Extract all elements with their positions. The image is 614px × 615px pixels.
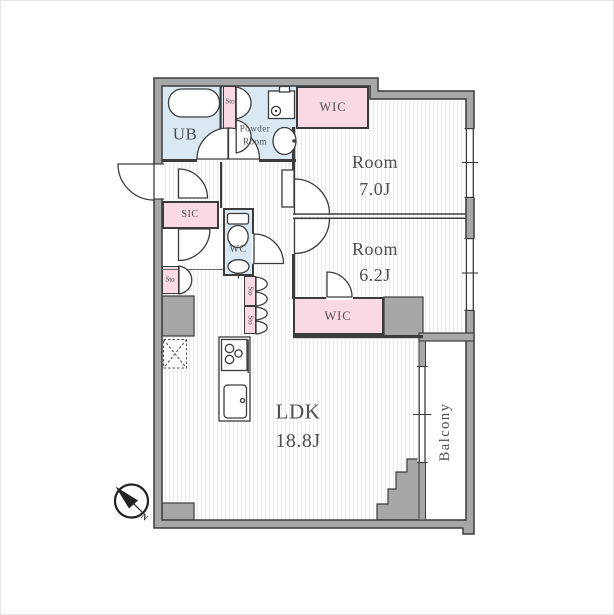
door-sto-hall-3 bbox=[256, 307, 267, 320]
door-ub bbox=[197, 128, 228, 159]
label-wc: WC bbox=[229, 245, 246, 255]
door-entrance bbox=[118, 164, 154, 200]
bathtub-icon bbox=[169, 89, 220, 117]
wc-sink-icon bbox=[228, 260, 249, 279]
door-sto-entry bbox=[179, 266, 192, 294]
label-wic-upper: WIC bbox=[319, 101, 346, 114]
door-wc bbox=[254, 234, 284, 264]
kitchen-counter bbox=[219, 337, 250, 421]
label-sto-hall-lower: Sto bbox=[247, 315, 254, 324]
label-powder-line2: Room bbox=[243, 138, 267, 147]
door-bedroom1 bbox=[295, 179, 330, 214]
label-wic-lower: WIC bbox=[324, 310, 351, 323]
label-sto-entry: Sto bbox=[165, 277, 174, 284]
label-sto-bath: Sto bbox=[225, 99, 234, 106]
window-ldk-balcony bbox=[413, 366, 431, 463]
plan-linework: N bbox=[1, 1, 614, 615]
door-sto-hall-1 bbox=[256, 277, 267, 291]
toilet-icon bbox=[228, 214, 249, 248]
duct-step-block bbox=[377, 459, 421, 520]
label-balcony: Balcony bbox=[438, 403, 453, 462]
floor-plan: N UB Sto Powder Room WIC Room 7.0J Room … bbox=[0, 0, 614, 615]
label-bedroom2-name: Room bbox=[352, 240, 398, 258]
refrigerator-space-icon bbox=[164, 340, 187, 369]
door-sto-hall-4 bbox=[256, 321, 267, 334]
label-ldk-name: LDK bbox=[276, 402, 321, 423]
window-bedroom1 bbox=[462, 128, 478, 198]
label-bedroom1-name: Room bbox=[352, 153, 398, 171]
kitchen-sink-icon bbox=[224, 385, 247, 418]
label-sto-hall-upper: Sto bbox=[247, 286, 254, 295]
door-sic bbox=[179, 229, 211, 261]
label-bedroom2-size: 6.2J bbox=[359, 266, 391, 284]
label-ub: UB bbox=[173, 126, 198, 143]
door-sto-hall-2 bbox=[256, 292, 267, 306]
label-ldk-size: 18.8J bbox=[275, 431, 320, 451]
powder-basin-icon bbox=[273, 128, 296, 155]
compass-icon: N bbox=[115, 485, 151, 524]
stove-icon bbox=[222, 340, 248, 371]
hall-cabinet bbox=[282, 170, 294, 207]
label-bedroom1-size: 7.0J bbox=[359, 180, 391, 198]
label-powder-line1: Powder bbox=[240, 125, 271, 134]
door-hall bbox=[179, 169, 208, 198]
door-bedroom2 bbox=[295, 219, 330, 254]
door-wic-lower bbox=[327, 272, 352, 297]
door-sto-bath-1 bbox=[236, 87, 251, 119]
window-bedroom2 bbox=[462, 238, 478, 311]
balcony-top-wall bbox=[419, 333, 474, 341]
label-sic: SIC bbox=[181, 210, 198, 220]
washing-machine-icon bbox=[269, 87, 295, 119]
